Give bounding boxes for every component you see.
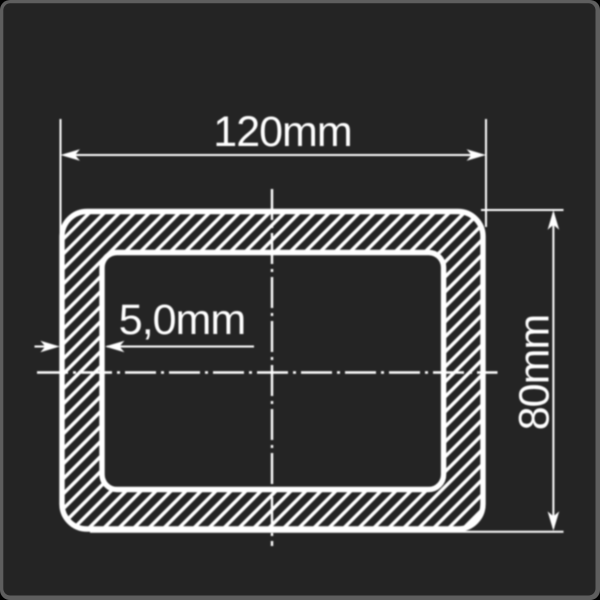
svg-text:80mm: 80mm [511,315,559,430]
svg-text:5,0mm: 5,0mm [119,296,245,344]
svg-text:120mm: 120mm [213,108,351,156]
